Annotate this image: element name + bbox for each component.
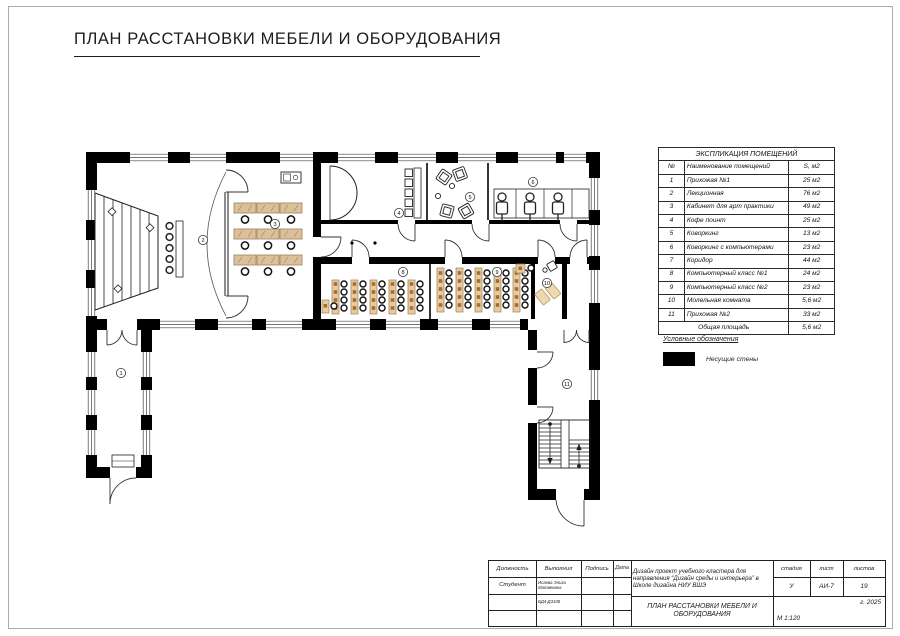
signature-header: Подпись <box>581 561 613 577</box>
legend: Условные обозначения Несущие стены <box>663 336 758 366</box>
col-header-area: S, м2 <box>789 161 835 174</box>
legend-title: Условные обозначения <box>663 336 758 343</box>
table-row: 4Кофе поинт25 м2 <box>659 214 835 227</box>
room-marker: 1 <box>116 368 125 377</box>
sheet-value: АИ-7 <box>810 577 843 596</box>
coffee-bar-stools <box>405 169 413 217</box>
stage-value: У <box>773 577 810 596</box>
svg-text:1: 1 <box>119 371 122 377</box>
staircase <box>539 420 590 468</box>
sheets-value: 19 <box>843 577 885 596</box>
room-marker: 3 <box>270 219 279 228</box>
room-marker: 11 <box>562 379 571 388</box>
project-description: Дизайн проект учебного кластера для напр… <box>633 562 771 595</box>
table-row: 10Молельная комната5,6 м2 <box>659 295 835 308</box>
group-code: БД4-Д3108 <box>536 594 583 610</box>
title-block: Должность Выполнил Подпись Дата Студент … <box>488 560 886 627</box>
svg-text:3: 3 <box>273 222 276 228</box>
computer-class-1-desks <box>332 280 423 314</box>
room-marker: 10 <box>542 278 551 287</box>
svg-text:4: 4 <box>397 211 400 217</box>
position-header: Должность <box>489 561 536 577</box>
table-row: 2Лекционная76 м2 <box>659 188 835 201</box>
lecture-hall-furniture <box>95 193 183 310</box>
svg-text:5: 5 <box>468 195 471 201</box>
executed-header: Выполнил <box>536 561 581 577</box>
wall-swatch <box>663 352 695 366</box>
drawing-title: ПЛАН РАССТАНОВКИ МЕБЕЛИ И ОБОРУДОВАНИЯ <box>631 596 773 626</box>
table-row: 11Прихожая №233 м2 <box>659 308 835 321</box>
svg-text:11: 11 <box>564 382 570 388</box>
col-header-name: Наименование помещений <box>684 161 788 174</box>
svg-text:8: 8 <box>401 270 404 276</box>
entry-porch <box>112 455 134 467</box>
legend-item-label: Несущие стены <box>706 356 758 363</box>
room-marker: 6 <box>528 177 537 186</box>
art-room-desks <box>234 203 302 275</box>
position-value: Студент <box>489 577 536 594</box>
room-marker: 9 <box>492 267 501 276</box>
drawing-sheet: { "page": { "title": "ПЛАН РАССТАНОВКИ М… <box>0 0 900 636</box>
table-row: 3Кабинет для арт практики49 м2 <box>659 201 835 214</box>
printer-station <box>281 172 301 183</box>
svg-text:6: 6 <box>531 180 534 186</box>
coworking-computer-stations <box>494 189 589 221</box>
table-row: 9Компьютерный класс №223 м2 <box>659 281 835 294</box>
year-label: г. 2025 <box>773 598 881 608</box>
svg-text:9: 9 <box>495 270 498 276</box>
explication-table: ЭКСПЛИКАЦИЯ ПОМЕЩЕНИЙ № Наименование пом… <box>658 147 835 335</box>
table-row: 5Коворкинг13 м2 <box>659 228 835 241</box>
sheet-header: лист <box>810 561 843 577</box>
scale-label: М 1:120 <box>777 614 837 624</box>
stage-header: стадия <box>773 561 810 577</box>
curved-partition <box>207 172 226 316</box>
col-header-num: № <box>659 161 685 174</box>
date-header: Дата <box>613 561 631 577</box>
table-row: 1Прихожая №125 м2 <box>659 174 835 187</box>
table-row: 8Компьютерный класс №124 м2 <box>659 268 835 281</box>
executed-name: Исаева Элиза Матвеевна <box>536 577 583 594</box>
svg-text:2: 2 <box>201 238 204 244</box>
table-row: 7Коридор44 м2 <box>659 255 835 268</box>
table-row: 6Коворкинг с компьютерами23 м2 <box>659 241 835 254</box>
table-total-row: Общая площадь5,6 м2 <box>659 322 835 335</box>
sheets-header: листов <box>843 561 885 577</box>
legend-item: Несущие стены <box>663 352 758 366</box>
computer-class-2-desks <box>437 268 528 312</box>
explication-title: ЭКСПЛИКАЦИЯ ПОМЕЩЕНИЙ <box>659 148 835 161</box>
room-marker: 4 <box>394 208 403 217</box>
svg-text:10: 10 <box>544 281 550 287</box>
room-marker: 8 <box>398 267 407 276</box>
room-marker: 2 <box>198 235 207 244</box>
room-marker: 5 <box>465 192 474 201</box>
